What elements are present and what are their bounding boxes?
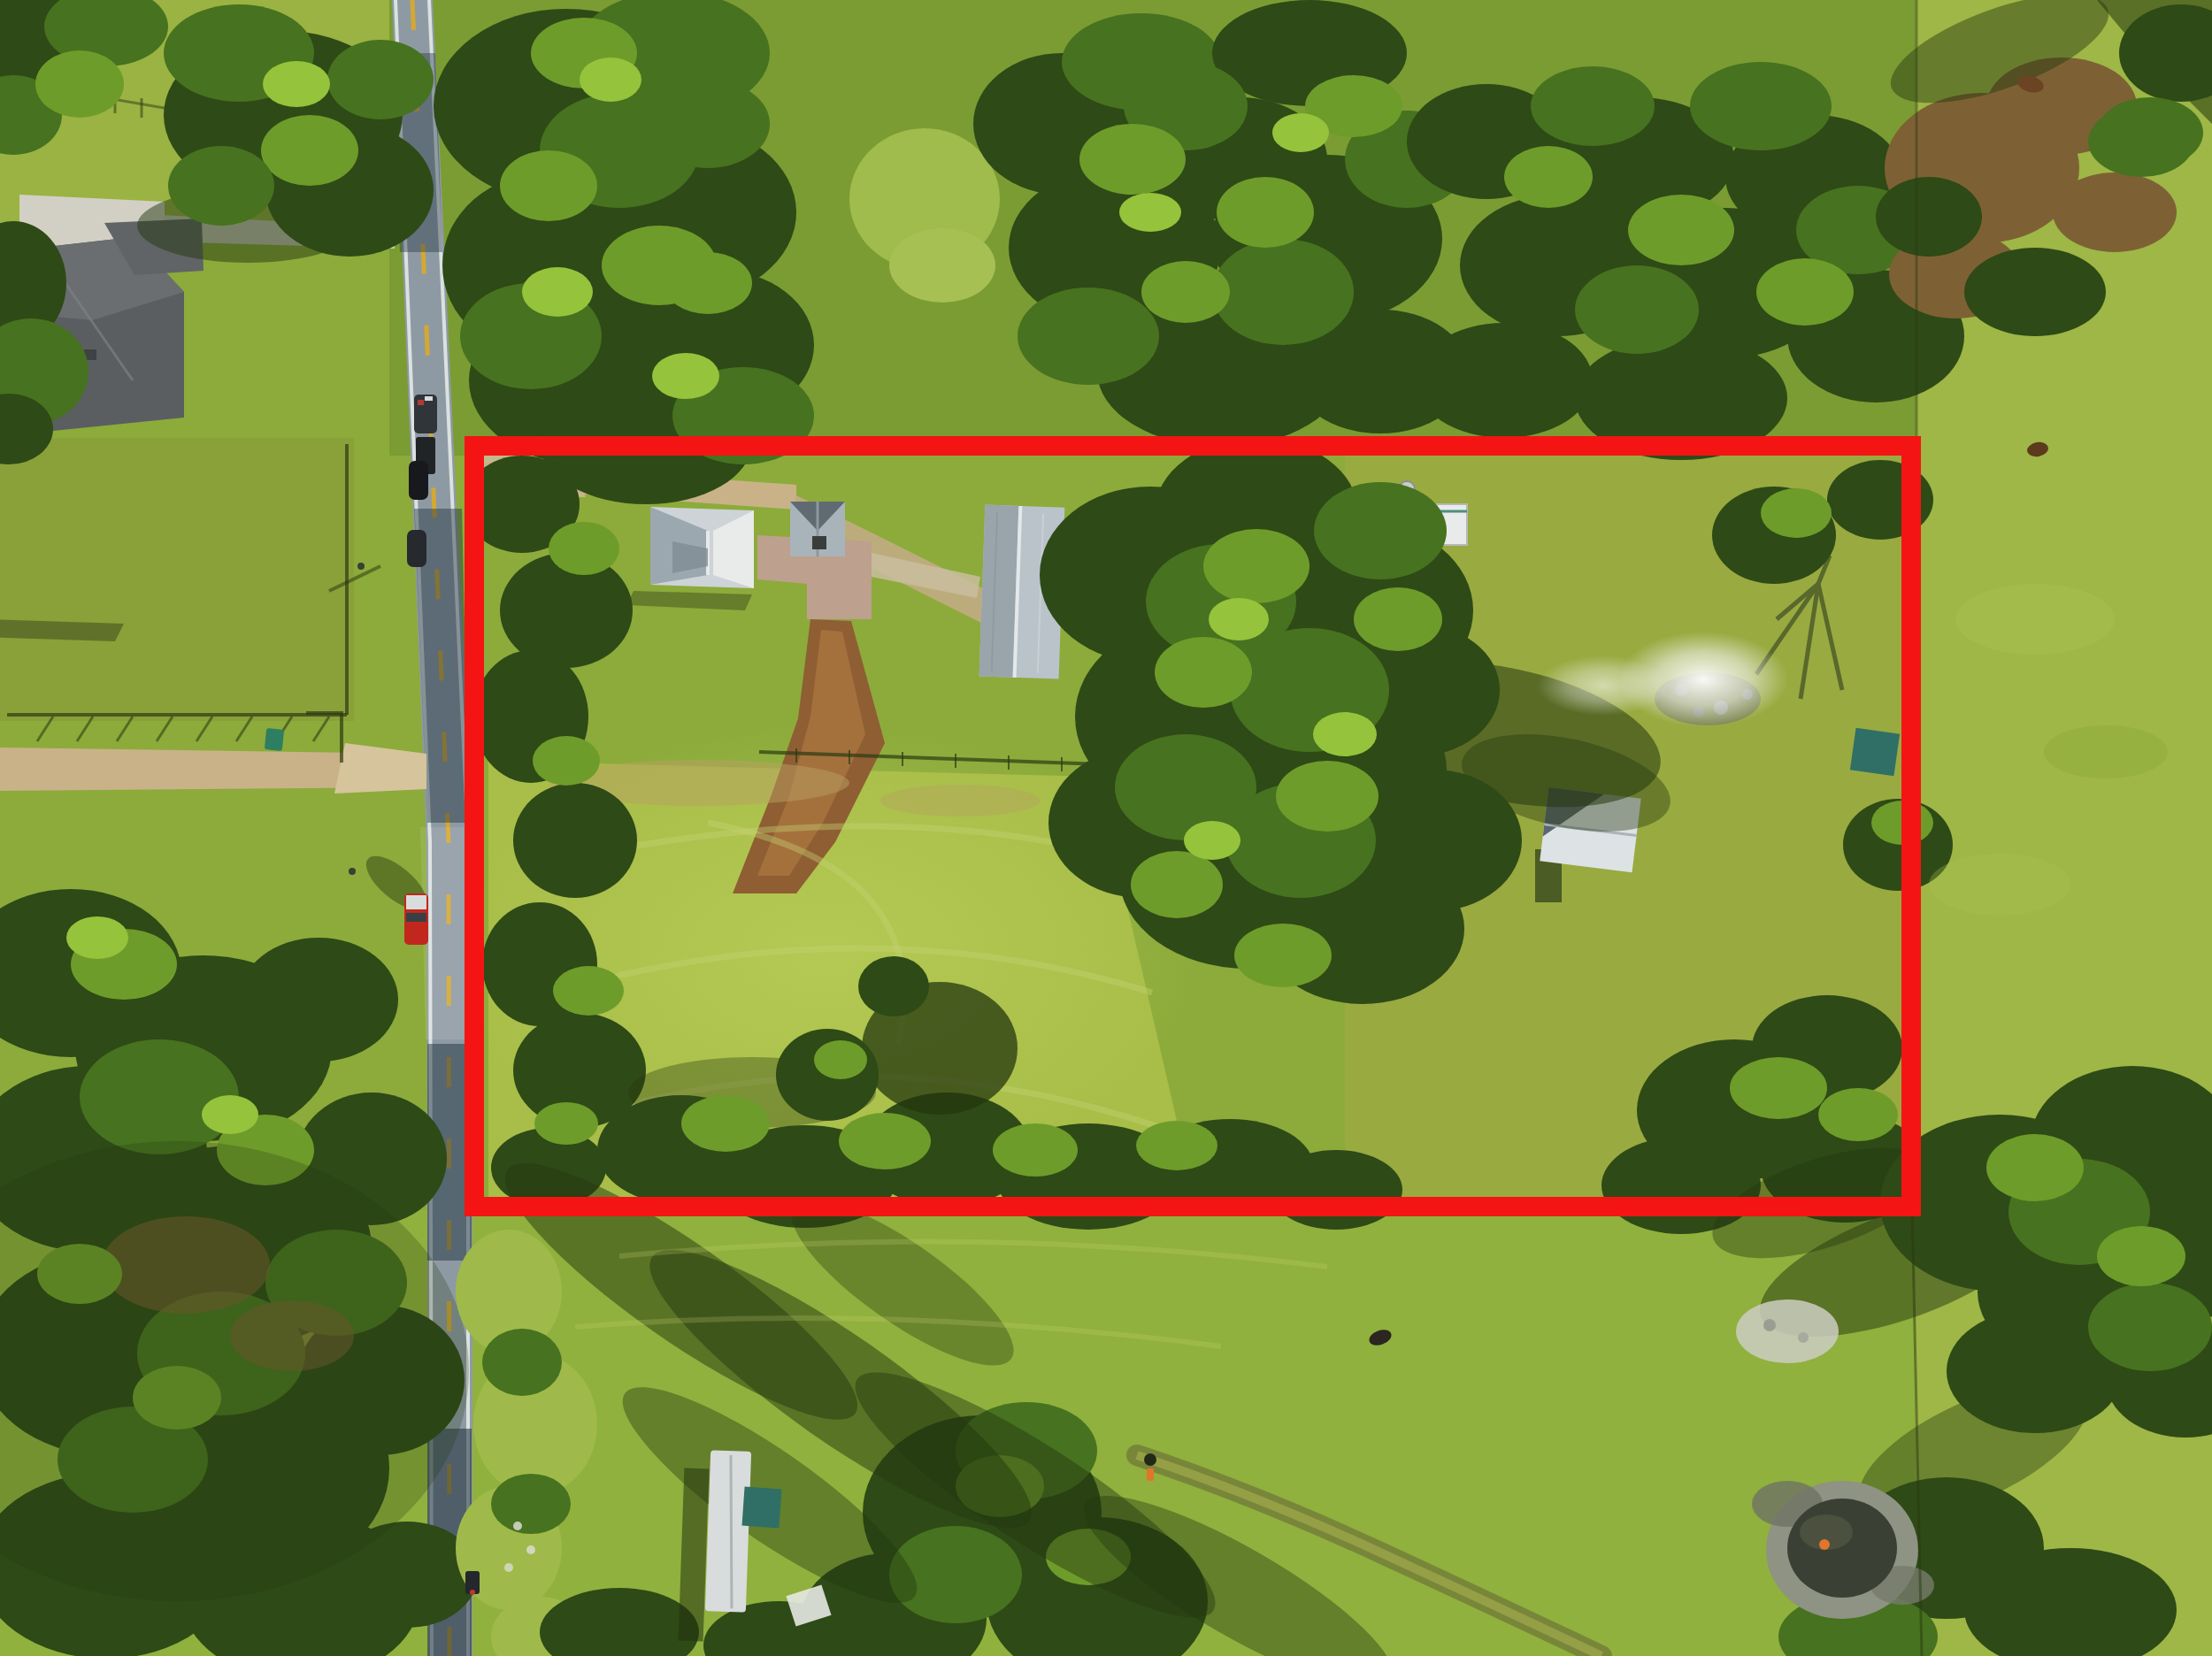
person-orange-vest <box>1147 1468 1154 1481</box>
grill <box>812 536 826 549</box>
teal-tarp <box>1850 728 1900 776</box>
small-vehicle-south <box>465 1571 480 1595</box>
teal-shed <box>742 1487 782 1529</box>
north-lawn-gap2 <box>889 228 995 303</box>
dirt-streak2 <box>880 785 1040 816</box>
west-pasture <box>0 438 354 721</box>
metal-barn-west-slope <box>979 505 1019 678</box>
green-bin <box>265 728 284 751</box>
aerial-photo <box>0 0 2212 1656</box>
tree-cluster-north-band-west <box>434 0 814 504</box>
dark-car <box>407 530 426 567</box>
duck <box>1819 1539 1830 1550</box>
tree-cluster-over-road <box>137 4 434 263</box>
pond-water <box>1787 1499 1897 1598</box>
white-rocks <box>1736 1299 1839 1363</box>
black-car <box>409 461 428 500</box>
truck-bed-load <box>406 895 426 909</box>
mobile-home-roof <box>705 1450 751 1612</box>
smoke-drift <box>1537 655 1670 716</box>
guest-shed <box>790 502 845 556</box>
aerial-photo-canvas <box>0 0 2212 1656</box>
